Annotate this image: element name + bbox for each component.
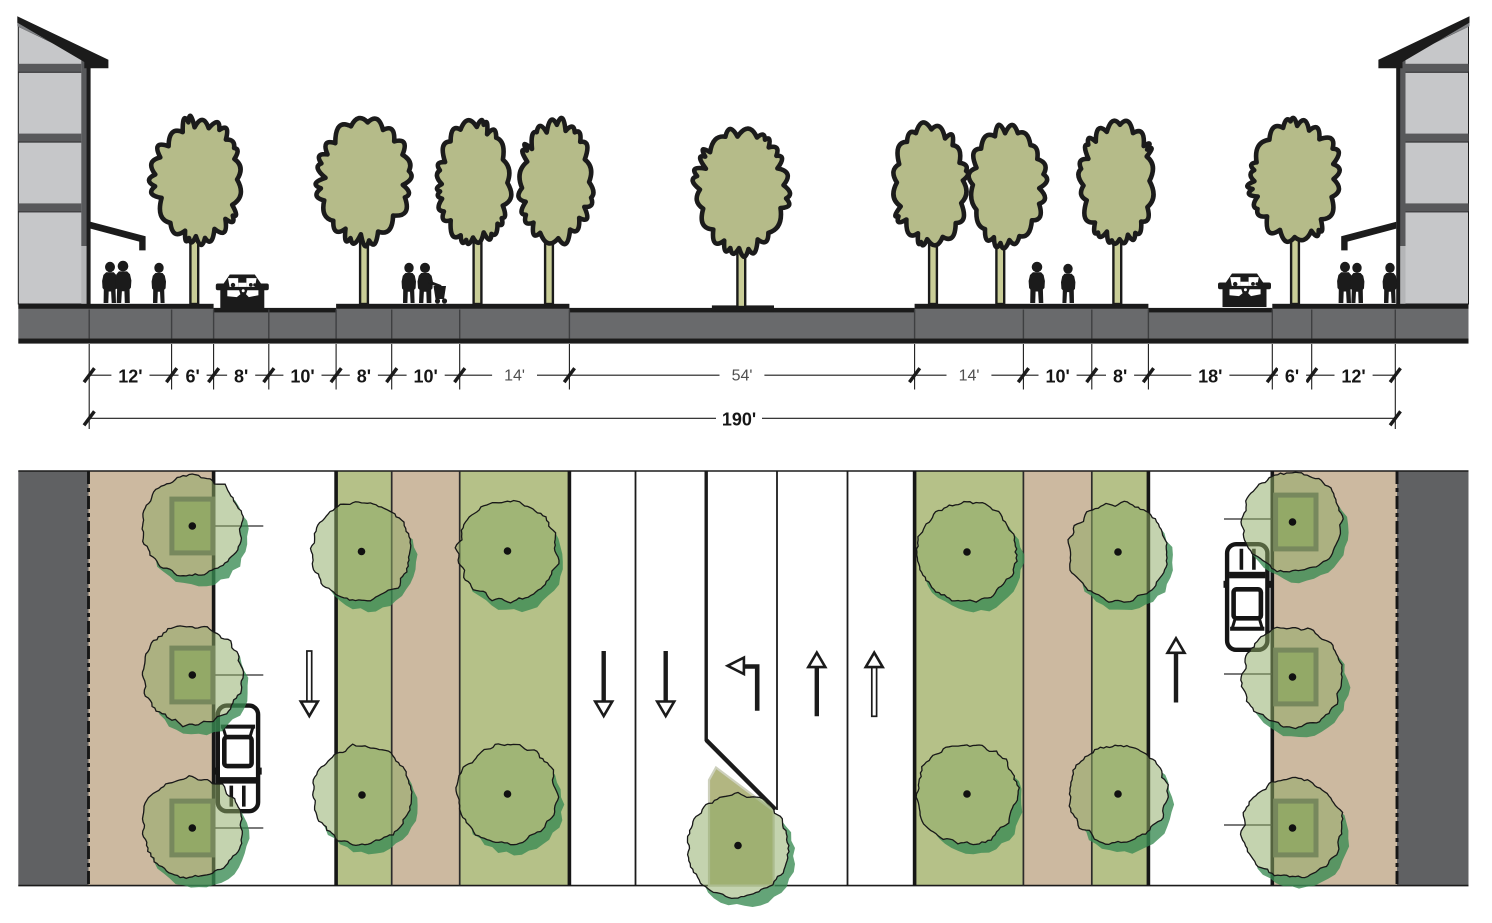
svg-text:10': 10' <box>414 367 438 387</box>
svg-text:6': 6' <box>185 367 199 387</box>
svg-text:12': 12' <box>1341 367 1365 387</box>
svg-text:54': 54' <box>732 368 753 385</box>
svg-text:8': 8' <box>1113 367 1127 387</box>
svg-text:6': 6' <box>1285 367 1299 387</box>
svg-text:14': 14' <box>504 368 525 385</box>
svg-text:18': 18' <box>1198 367 1222 387</box>
svg-text:8': 8' <box>357 367 371 387</box>
svg-text:8': 8' <box>234 367 248 387</box>
svg-text:190': 190' <box>722 410 756 430</box>
svg-text:10': 10' <box>290 367 314 387</box>
svg-text:12': 12' <box>118 367 142 387</box>
svg-text:14': 14' <box>959 368 980 385</box>
svg-text:10': 10' <box>1045 367 1069 387</box>
